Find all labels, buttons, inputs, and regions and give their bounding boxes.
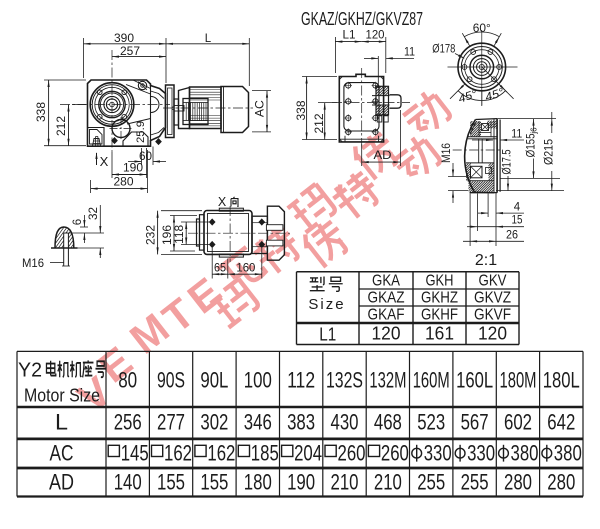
svg-text:346: 346 — [244, 409, 272, 434]
svg-text:260: 260 — [381, 440, 409, 465]
svg-text:390: 390 — [114, 33, 134, 45]
svg-text:L1: L1 — [343, 30, 356, 42]
svg-text:L1: L1 — [319, 325, 336, 345]
svg-text:132S: 132S — [326, 368, 363, 393]
svg-text:257: 257 — [120, 46, 140, 58]
svg-text:280: 280 — [504, 469, 532, 494]
svg-text:212: 212 — [314, 114, 326, 134]
svg-text:190: 190 — [287, 469, 315, 494]
svg-text:160M: 160M — [413, 368, 450, 393]
svg-text:280: 280 — [114, 177, 134, 189]
svg-text:6: 6 — [72, 219, 84, 225]
svg-text:255: 255 — [417, 469, 445, 494]
svg-text:GKAZ/GKHZ/GKVZ87: GKAZ/GKHZ/GKVZ87 — [301, 8, 423, 29]
svg-text:M16: M16 — [441, 143, 453, 163]
svg-text:GKVZ: GKVZ — [474, 290, 511, 307]
svg-text:132M: 132M — [369, 368, 406, 393]
svg-text:Ø155: Ø155 — [526, 133, 538, 157]
svg-text:162: 162 — [164, 440, 192, 465]
svg-text:302: 302 — [200, 409, 228, 434]
svg-text:15: 15 — [512, 215, 523, 227]
svg-text:280: 280 — [547, 469, 575, 494]
svg-text:AC: AC — [255, 100, 267, 117]
svg-text:AD: AD — [49, 469, 74, 494]
svg-text:GKVF: GKVF — [474, 307, 511, 324]
svg-text:Ø178: Ø178 — [432, 44, 455, 56]
svg-text:255: 255 — [461, 469, 489, 494]
svg-text:60°: 60° — [473, 23, 491, 35]
svg-text:L: L — [55, 409, 68, 434]
svg-text:60: 60 — [139, 151, 152, 163]
svg-text:Motor Size: Motor Size — [24, 386, 100, 406]
svg-text:160: 160 — [236, 263, 255, 275]
svg-text:180: 180 — [244, 469, 272, 494]
svg-text:256: 256 — [114, 409, 142, 434]
svg-text:180M: 180M — [500, 368, 537, 393]
svg-text:GKHF: GKHF — [421, 307, 458, 324]
svg-text:X: X — [100, 154, 109, 169]
svg-text:X: X — [218, 195, 227, 209]
svg-text:AD: AD — [374, 150, 392, 162]
svg-text:210: 210 — [374, 469, 402, 494]
svg-text:232: 232 — [146, 225, 158, 245]
svg-text:80: 80 — [118, 368, 137, 393]
svg-text:100: 100 — [244, 368, 272, 393]
svg-text:26: 26 — [506, 229, 518, 241]
svg-text:567: 567 — [461, 409, 489, 434]
svg-text:GKHZ: GKHZ — [421, 290, 458, 307]
svg-text:468: 468 — [374, 409, 402, 434]
svg-text:120: 120 — [372, 324, 401, 344]
svg-text:32: 32 — [88, 207, 100, 220]
svg-text:112: 112 — [287, 368, 315, 393]
svg-text:Ø215: Ø215 — [544, 139, 556, 165]
svg-text:161: 161 — [425, 324, 454, 344]
svg-text:380: 380 — [511, 440, 539, 465]
svg-text:GKH: GKH — [426, 273, 454, 290]
svg-text:Ø17.5: Ø17.5 — [502, 150, 514, 175]
svg-text:Size: Size — [308, 296, 345, 313]
svg-text:160L: 160L — [456, 368, 493, 393]
svg-text:4: 4 — [514, 202, 521, 214]
svg-text:155: 155 — [200, 469, 228, 494]
svg-text:383: 383 — [287, 409, 315, 434]
svg-text:180L: 180L — [543, 368, 580, 393]
svg-text:120: 120 — [478, 324, 507, 344]
svg-text:602: 602 — [504, 409, 532, 434]
svg-text:523: 523 — [417, 409, 445, 434]
svg-text:330: 330 — [424, 440, 452, 465]
svg-text:210: 210 — [331, 469, 359, 494]
svg-text:118: 118 — [174, 225, 186, 244]
svg-text:196: 196 — [162, 225, 174, 245]
svg-text:380: 380 — [554, 440, 582, 465]
svg-text:204: 204 — [294, 440, 322, 465]
svg-text:90L: 90L — [200, 368, 228, 393]
svg-text:120: 120 — [366, 30, 385, 42]
svg-text:190: 190 — [123, 163, 143, 175]
svg-text:Y2: Y2 — [18, 360, 42, 382]
svg-text:642: 642 — [547, 409, 575, 434]
svg-text:145: 145 — [121, 440, 149, 465]
svg-text:L: L — [205, 33, 212, 45]
svg-text:11: 11 — [404, 46, 415, 58]
svg-text:212: 212 — [56, 116, 68, 136]
svg-text:185: 185 — [251, 440, 279, 465]
svg-text:GKAZ: GKAZ — [368, 290, 405, 307]
svg-text:338: 338 — [296, 101, 308, 121]
svg-text:155: 155 — [157, 469, 185, 494]
svg-text:430: 430 — [331, 409, 359, 434]
svg-text:277: 277 — [157, 409, 185, 434]
svg-text:162: 162 — [207, 440, 235, 465]
svg-text:AC: AC — [50, 440, 74, 465]
svg-text:338: 338 — [36, 102, 48, 122]
svg-text:11: 11 — [511, 129, 522, 141]
svg-text:M16: M16 — [22, 258, 44, 270]
svg-text:j6: j6 — [530, 127, 539, 135]
svg-text:140: 140 — [114, 469, 142, 494]
svg-text:2:1: 2:1 — [475, 252, 497, 269]
svg-text:GKV: GKV — [479, 273, 508, 290]
svg-text:GKA: GKA — [372, 273, 401, 290]
svg-text:260: 260 — [338, 440, 366, 465]
svg-text:330: 330 — [467, 440, 495, 465]
svg-text:90S: 90S — [157, 368, 185, 393]
svg-text:25.9: 25.9 — [135, 121, 147, 143]
svg-text:GKAF: GKAF — [368, 307, 405, 324]
svg-text:65: 65 — [214, 263, 226, 275]
